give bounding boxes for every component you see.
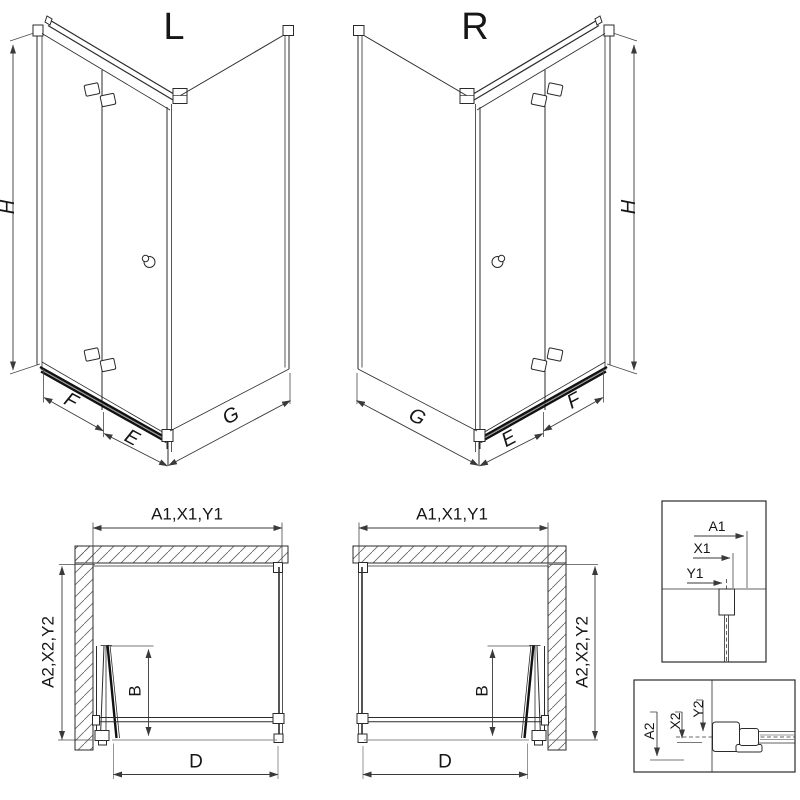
shower-enclosure-technical-drawing: L H F E G R H G E F bbox=[0, 0, 800, 800]
iso-left-title: L bbox=[163, 6, 184, 48]
detail-y2-label: Y2 bbox=[690, 700, 706, 717]
h-ext-bottom bbox=[10, 364, 40, 374]
detail-x1-label: X1 bbox=[693, 540, 710, 556]
detail-bottom-profile-body bbox=[713, 722, 740, 752]
detail-a1-label: A1 bbox=[708, 518, 725, 534]
iso-right-g-label: G bbox=[405, 404, 429, 431]
top-hinge-left-leaf bbox=[84, 83, 100, 97]
plan-bar-glass-bracket bbox=[273, 714, 284, 724]
iso-left-e-label: E bbox=[121, 425, 144, 451]
top-rail-lower bbox=[48, 26, 178, 104]
iso-right-geometry-mirrored bbox=[354, 16, 638, 466]
iso-left-g-label: G bbox=[219, 403, 243, 430]
plan-right-b-label: B bbox=[473, 685, 492, 696]
iso-right-f-label: F bbox=[563, 388, 586, 414]
plan-bar-wall-bracket bbox=[93, 716, 100, 726]
iso-left-f-label: F bbox=[60, 388, 83, 414]
top-rail-end-cap bbox=[45, 16, 52, 25]
detail-top-wall-profile bbox=[719, 589, 735, 615]
iso-enclosure-geometry bbox=[10, 16, 294, 466]
side-panel-top-edge bbox=[181, 32, 290, 96]
technical-drawing-page: L H F E G R H G E F bbox=[0, 0, 800, 800]
iso-right-height-label: H bbox=[618, 199, 640, 214]
detail-a2-label: A2 bbox=[641, 722, 657, 739]
plan-door-foot-pad bbox=[99, 741, 107, 746]
plan-right-side-label: A2,X2,Y2 bbox=[573, 616, 592, 688]
plan-left-side-wall bbox=[75, 546, 93, 750]
detail-bottom-profile-clamp bbox=[740, 729, 759, 746]
detail-x2-label: X2 bbox=[667, 712, 683, 729]
top-hinge-right-leaf bbox=[100, 93, 116, 107]
plan-left-d-label: D bbox=[189, 752, 203, 773]
plan-right-top-label: A1,X1,Y1 bbox=[416, 505, 488, 524]
plan-top-corner-connector bbox=[274, 563, 283, 573]
corner-top-connector bbox=[173, 89, 187, 104]
bottom-hinge-right-leaf bbox=[100, 358, 116, 372]
plan-left-top-label: A1,X1,Y1 bbox=[151, 505, 223, 524]
plan-left-side-label: A2,X2,Y2 bbox=[39, 616, 58, 688]
door-knob-stem bbox=[142, 255, 148, 261]
detail-y1-label: Y1 bbox=[686, 565, 703, 581]
plan-bottom-corner-connector bbox=[274, 734, 283, 743]
side-panel-top-cap bbox=[283, 26, 294, 36]
iso-right-title: R bbox=[461, 6, 488, 48]
plan-left-b-label: B bbox=[126, 685, 145, 696]
plan-door-foot-bracket bbox=[95, 731, 109, 741]
plan-right-top-wall bbox=[353, 546, 566, 563]
detail-bottom-profile-section: A2 X2 Y2 bbox=[634, 680, 795, 772]
wall-profile-cap bbox=[33, 25, 43, 36]
top-rail-upper bbox=[48, 19, 178, 97]
threshold-rail-top bbox=[40, 367, 166, 438]
plan-right-side-wall bbox=[548, 546, 566, 750]
bottom-hinge-left-leaf bbox=[84, 348, 100, 362]
door-glass-bottom-edge bbox=[42, 362, 166, 434]
corner-bottom-connector bbox=[162, 430, 173, 442]
plan-left-top-wall bbox=[75, 546, 288, 563]
detail-top-profile-section: A1 X1 Y1 bbox=[662, 501, 766, 662]
plan-door-leaf-1 bbox=[101, 646, 105, 736]
plan-right-d-label: D bbox=[438, 752, 452, 773]
iso-right-e-label: E bbox=[498, 426, 521, 452]
iso-left-height-label: H bbox=[0, 199, 19, 214]
